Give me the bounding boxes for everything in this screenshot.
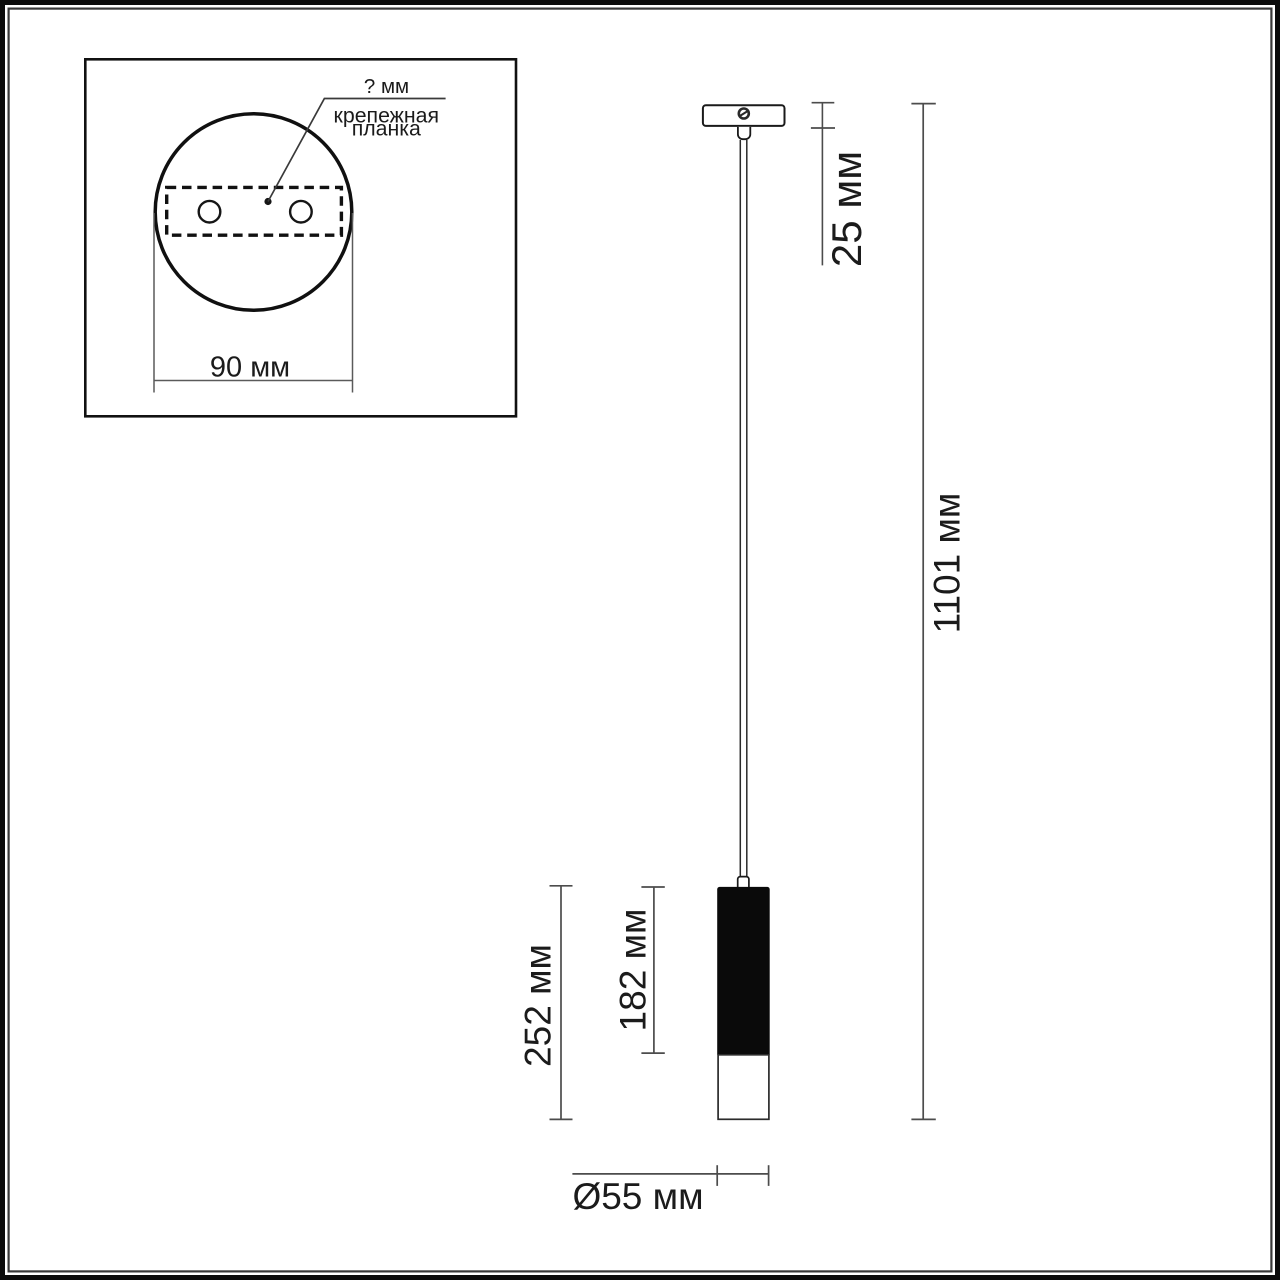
svg-text:90 мм: 90 мм [210,352,290,384]
svg-text:? мм: ? мм [364,75,409,98]
svg-text:252 мм: 252 мм [518,944,559,1067]
svg-text:Ø55 мм: Ø55 мм [572,1176,703,1217]
svg-text:1101 мм: 1101 мм [927,493,968,634]
svg-text:182 мм: 182 мм [613,909,654,1032]
svg-text:планка: планка [352,117,421,141]
svg-text:25 мм: 25 мм [823,151,870,267]
